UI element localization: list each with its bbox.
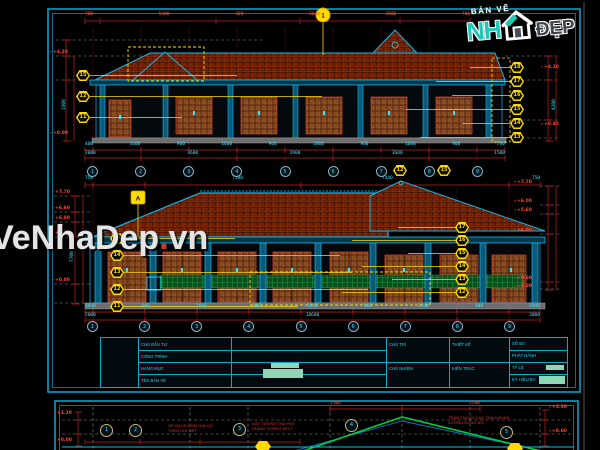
callout-hex: 12 [110, 284, 124, 295]
d1-left-callouts: 151211 [76, 70, 90, 123]
callout-hex: 16 [455, 235, 469, 246]
callout-number: 12 [110, 284, 124, 295]
grid-bubble: 6 [328, 166, 339, 177]
tb-label: HẠNG MỤC [141, 366, 164, 371]
level-marker: +1.20 [54, 410, 72, 416]
callout-number: 14 [455, 261, 469, 272]
detail-ring: 4 [345, 419, 358, 432]
callout-hex: 14 [510, 118, 524, 129]
dim-label: 3600 [309, 13, 320, 18]
tb-row-line [509, 350, 567, 351]
d1-dims-row1: 4001600900160090018009001600900750 [85, 143, 505, 148]
callout-number: 18 [510, 62, 524, 73]
callout-number: 15 [437, 165, 451, 176]
grid-bubble: 2 [139, 321, 150, 332]
dim-label: 1600 [405, 143, 416, 148]
dim-label: 1600 [221, 143, 232, 148]
callout-hex: 15 [437, 165, 451, 176]
tb-label: TÊN BẢN VẼ [141, 378, 166, 383]
tb-row-line [509, 374, 567, 375]
callout-number: 12 [393, 165, 407, 176]
dim-label: 900 [360, 143, 368, 148]
dim-label: 2000 [85, 314, 96, 319]
callout-number: 12 [455, 287, 469, 298]
dim-label: 1940 [307, 305, 318, 310]
dim-label: 18680 [306, 314, 320, 319]
tb-label: KÝ HIỆU BV [512, 377, 536, 382]
dim-label: 2000 [529, 314, 540, 319]
callout-hex: 17 [455, 222, 469, 233]
callout-hex: 12 [393, 165, 407, 176]
callout-number: 15 [76, 70, 90, 81]
tb-row-line [138, 362, 386, 363]
level-marker: +4.20 [50, 49, 68, 55]
d1-right-callouts: 181716151413 [510, 62, 524, 143]
tb-row-line [138, 374, 386, 375]
callout-hex: 17 [510, 76, 524, 87]
tb-label: CÔNG TRÌNH [141, 354, 167, 359]
callout-number: 11 [76, 112, 90, 123]
dim-label: 1940 [85, 305, 96, 310]
tb-label: PHÁT HÀNH [512, 353, 536, 358]
dim-label: 3900 [290, 152, 301, 157]
detail-ring: 1 [100, 424, 113, 437]
watermark-dot: . [159, 219, 168, 257]
dim-label: 3600 [187, 152, 198, 157]
grid-bubble: 3 [191, 321, 202, 332]
dim-label: 1500 [330, 402, 341, 407]
tb-row-line [386, 362, 509, 363]
dim-label: 750 [85, 177, 93, 182]
tb-highlight [546, 365, 564, 370]
tb-highlight [263, 369, 303, 378]
callout-number: 16 [455, 235, 469, 246]
dim-label: 900 [142, 305, 150, 310]
callout-hex: 12 [455, 287, 469, 298]
dim-label: 700 [85, 13, 93, 18]
d2-dims-row1: 19409001940900194090019409001940 [85, 305, 540, 310]
callout-hex: 15 [76, 70, 90, 81]
tb-label: SỐ BV [512, 341, 525, 346]
dim-label: 1600 [130, 143, 141, 148]
tb-label: KIẾN TRÚC [452, 366, 475, 371]
dim-label: 900 [475, 305, 483, 310]
grid-bubble: 1 [87, 321, 98, 332]
callout-hex: 11 [76, 112, 90, 123]
callout-number: 15 [510, 104, 524, 115]
detail-callout-label: A [136, 196, 141, 203]
callout-number: 17 [510, 76, 524, 87]
grid-bubble: 5 [280, 166, 291, 177]
dim-label: 5400 [159, 13, 170, 18]
grid-bubble: 9 [472, 166, 483, 177]
level-marker: +7.70 [52, 189, 70, 195]
d1-dims-row2: 20003600390036001500 [85, 152, 505, 157]
callout-number: 12 [76, 91, 90, 102]
dim-label: 1940 [418, 305, 429, 310]
callout-number: 13 [455, 274, 469, 285]
dim-label: 1940 [529, 305, 540, 310]
grid-bubble: 1 [87, 166, 98, 177]
callout-hex: 18 [510, 62, 524, 73]
grid-bubble: 4 [243, 321, 254, 332]
watermark: VeNhaDep.vn [0, 219, 208, 258]
tb-label: CHỦ TRÌ [389, 342, 406, 347]
level-marker: +5.60 [514, 207, 532, 213]
grid-bubble: 9 [504, 321, 515, 332]
callout-hex: 13 [110, 267, 124, 278]
dim-label: 7440 [382, 177, 393, 182]
level-marker: +4.20 [541, 64, 559, 70]
level-marker: +7.70 [514, 179, 532, 185]
watermark-text: VeNhaDep [0, 219, 159, 257]
house-icon [499, 8, 536, 43]
tb-label: THIẾT KẾ [452, 342, 471, 347]
dim-label: 400 [85, 143, 93, 148]
watermark-tld: vn [169, 219, 209, 257]
callout-number: 13 [510, 132, 524, 143]
callout-hex: 14 [455, 261, 469, 272]
tb-label: TỶ LỆ [512, 365, 524, 370]
level-marker: +0.60 [514, 275, 532, 281]
callout-hex: 11 [110, 301, 124, 312]
dim-label: 2000 [85, 152, 96, 157]
callout-hex: 15 [455, 248, 469, 259]
level-marker: +0.00 [52, 277, 70, 283]
level-marker: +3.30 [549, 404, 567, 410]
grid-bubble: 5 [296, 321, 307, 332]
grid-bubbles-row2: 123456789 [87, 321, 515, 332]
detail-ring: 2 [129, 424, 142, 437]
level-marker: +4.00 [514, 227, 532, 233]
dim-label: 2500 [469, 402, 480, 407]
detail-ring: 5 [500, 426, 513, 439]
grid-bubble: 4 [231, 166, 242, 177]
dim-label: 1500 [494, 152, 505, 157]
dim-label: 900 [452, 143, 460, 148]
tb-label: CHỦ ĐẦU TƯ [141, 342, 167, 347]
level-marker: +0.60 [549, 428, 567, 434]
dim-label: 3600 [385, 13, 396, 18]
grid-bubble: 8 [452, 321, 463, 332]
sheet2-top-dims: 15002500 [330, 402, 480, 407]
level-marker: +0.00 [54, 437, 72, 443]
tb-highlight [271, 363, 299, 368]
callout-number: 17 [455, 222, 469, 233]
dim-label: 900 [364, 305, 372, 310]
vertical-dim: 3300 [62, 99, 67, 110]
grid-bubble: 2 [135, 166, 146, 177]
dim-label: 900 [177, 143, 185, 148]
callout-hex: 12 [76, 91, 90, 102]
annotation: TRẦN THẠCH CAO TẤM KHUNG XƯƠNG ĐỒNG BỘ [448, 415, 528, 426]
dim-label: 750 [532, 177, 540, 182]
grid-bubble: 7 [400, 321, 411, 332]
vertical-dim: 4200 [552, 99, 557, 110]
level-marker: +0.00 [514, 283, 532, 289]
d2-right-callouts: 171615141312 [455, 222, 469, 298]
tb-row-line [138, 350, 386, 351]
callout-hex: 13 [510, 132, 524, 143]
title-block: CHỦ ĐẦU TƯ CÔNG TRÌNH HẠNG MỤC TÊN BẢN V… [100, 337, 568, 388]
dim-label: 750 [497, 143, 505, 148]
callout-number: 16 [510, 90, 524, 101]
level-marker: +0.00 [50, 130, 68, 136]
dim-label: 1800 [313, 143, 324, 148]
tb-row-line [509, 362, 567, 363]
callout-hex: 16 [510, 90, 524, 101]
tb-label: CHỦ NHIỆM [389, 366, 413, 371]
tb-highlight [539, 376, 565, 384]
d2-top-dims: 75075007440750 [85, 177, 540, 182]
callout-number: 14 [510, 118, 524, 129]
dim-label: 900 [253, 305, 261, 310]
mid-callouts: 1215 [393, 165, 451, 176]
callout-number: 11 [110, 301, 124, 312]
dim-label: 1940 [196, 305, 207, 310]
callout-hex: 13 [455, 274, 469, 285]
level-marker: +0.45 [541, 121, 559, 127]
dim-label: 900 [269, 143, 277, 148]
dim-label: 7500 [232, 177, 243, 182]
building-1 [90, 30, 506, 143]
grid-bubble: 6 [348, 321, 359, 332]
annotation: XÂY TƯỜNG THU HỒI GIẰNG TƯỜNG BTCT [252, 421, 332, 432]
dim-label: 3600 [392, 152, 403, 157]
d1-top-dims: 700540030036003600700 [85, 13, 470, 18]
callout-number: 15 [455, 248, 469, 259]
dim-label: 300 [235, 13, 243, 18]
level-marker: +6.60 [52, 205, 70, 211]
callout-hex: 15 [510, 104, 524, 115]
d2-dims-row2: 2000186802000 [85, 314, 540, 319]
annotation: ỐP GẠCH GỐM GIẢ CỔ THEO CHI TIẾT [168, 423, 240, 434]
cad-screenshot: 1 A VeNhaDep.vn BẢN VẼ NH ĐẸP 7005400300… [0, 0, 600, 450]
grid-bubble: 3 [183, 166, 194, 177]
callout-number: 13 [110, 267, 124, 278]
level-marker: +6.00 [514, 198, 532, 204]
logo-text-nha: NH [466, 18, 502, 46]
logo-text-dep: ĐẸP [535, 17, 576, 39]
grid-bubble: 7 [376, 166, 387, 177]
